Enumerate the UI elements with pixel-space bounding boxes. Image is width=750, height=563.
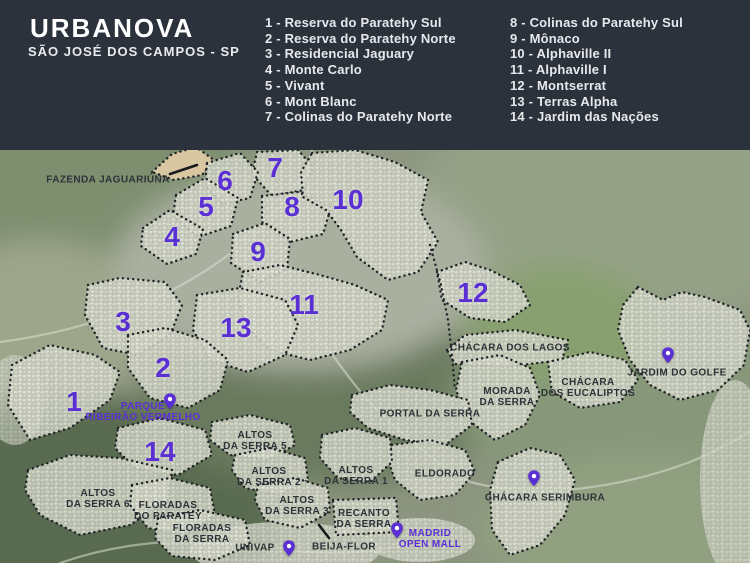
label-line: UNIVAP [235, 542, 274, 553]
area-number-14: 14 [144, 438, 175, 466]
jardim-do-golfe-pin-icon [659, 346, 677, 364]
legend-item: 1 - Reserva do Paratehy Sul [265, 15, 456, 31]
label-fazenda-jaguariuna: FAZENDA JAGUARIÚNA [46, 174, 170, 185]
legend-item: 4 - Monte Carlo [265, 62, 456, 78]
label-morada-da-serra: MORADADA SERRA [479, 386, 534, 408]
label-eldorado: ELDORADO [415, 468, 475, 479]
legend-item: 7 - Colinas do Paratehy Norte [265, 109, 456, 125]
label-line: FLORADAS [134, 500, 202, 511]
area-number-7: 7 [267, 154, 283, 182]
label-line: DA SERRA 1 [324, 476, 388, 487]
area-number-12: 12 [457, 279, 488, 307]
label-line: DA SERRA [336, 519, 391, 530]
area-number-11: 11 [289, 291, 319, 319]
legend-item: 8 - Colinas do Paratehy Sul [510, 15, 683, 31]
univap-pin-icon [280, 539, 298, 557]
label-line: ALTOS [237, 466, 301, 477]
label-line: RECANTO [336, 508, 391, 519]
label-altos-da-serra-5: ALTOSDA SERRA 5 [223, 430, 287, 452]
label-altos-da-serra-1: ALTOSDA SERRA 1 [324, 465, 388, 487]
parque-ribeirao-vermelho-pin-icon [161, 392, 179, 410]
area-number-3: 3 [115, 308, 131, 336]
legend-item: 12 - Montserrat [510, 78, 683, 94]
label-line: ALTOS [223, 430, 287, 441]
label-line: DA SERRA 6 [66, 499, 130, 510]
label-portal-da-serra: PORTAL DA SERRA [380, 408, 481, 419]
label-chacara-dos-eucaliptos: CHÁCARADOS EUCALIPTOS [541, 377, 635, 399]
label-floradas-do-paratey: FLORADASDO PARATEY [134, 500, 202, 522]
label-line: MADRID [399, 528, 462, 539]
label-line: FAZENDA JAGUARIÚNA [46, 174, 170, 185]
legend-item: 11 - Alphaville I [510, 62, 683, 78]
area-number-13: 13 [220, 314, 251, 342]
label-line: ALTOS [324, 465, 388, 476]
label-line: DA SERRA [173, 534, 232, 545]
label-line: FLORADAS [173, 523, 232, 534]
label-line: DA SERRA 2 [237, 477, 301, 488]
label-line: BEIJA-FLOR [312, 541, 376, 552]
label-line: CHÁCARA [541, 377, 635, 388]
label-line: OPEN MALL [399, 539, 462, 550]
madrid-open-mall-pin-icon [388, 521, 406, 539]
label-line: DOS EUCALIPTOS [541, 388, 635, 399]
area-number-1: 1 [66, 388, 82, 416]
label-line: PARQUE [85, 401, 200, 412]
label-altos-da-serra-6: ALTOSDA SERRA 6 [66, 488, 130, 510]
legend-column-1: 1 - Reserva do Paratehy Sul2 - Reserva d… [265, 15, 456, 125]
area-number-5: 5 [198, 193, 214, 221]
chacara-serimbura-pin-icon [525, 469, 543, 487]
satellite-map: 1234567891011121314FAZENDA JAGUARIÚNACHÁ… [0, 150, 750, 563]
label-madrid-open-mall: MADRIDOPEN MALL [399, 528, 462, 550]
legend-item: 10 - Alphaville II [510, 46, 683, 62]
area-number-9: 9 [250, 238, 266, 266]
label-line: ALTOS [66, 488, 130, 499]
area-number-8: 8 [284, 193, 300, 221]
area-number-10: 10 [332, 186, 363, 214]
label-line: ELDORADO [415, 468, 475, 479]
legend-item: 13 - Terras Alpha [510, 94, 683, 110]
legend-item: 6 - Mont Blanc [265, 94, 456, 110]
page-title: URBANOVA [30, 13, 194, 44]
label-recanto-da-serra: RECANTODA SERRA [336, 508, 391, 530]
header: URBANOVA SÃO JOSÉ DOS CAMPOS - SP 1 - Re… [0, 0, 750, 150]
legend-item: 3 - Residencial Jaguary [265, 46, 456, 62]
label-line: CHÁCARA SERIMBURA [485, 492, 605, 503]
legend-item: 2 - Reserva do Paratehy Norte [265, 31, 456, 47]
legend-item: 9 - Mônaco [510, 31, 683, 47]
area-number-6: 6 [217, 167, 233, 195]
label-line: DA SERRA 3 [265, 506, 329, 517]
label-line: DA SERRA [479, 397, 534, 408]
label-line: DO PARATEY [134, 511, 202, 522]
page-subtitle: SÃO JOSÉ DOS CAMPOS - SP [28, 44, 240, 59]
urbanova-map-infographic: URBANOVA SÃO JOSÉ DOS CAMPOS - SP 1 - Re… [0, 0, 750, 563]
area-number-4: 4 [164, 223, 180, 251]
label-chacara-serimbura: CHÁCARA SERIMBURA [485, 492, 605, 503]
label-line: CHÁCARA DOS LAGOS [450, 342, 570, 353]
label-altos-da-serra-2: ALTOSDA SERRA 2 [237, 466, 301, 488]
label-beija-flor: BEIJA-FLOR [312, 541, 376, 552]
legend-item: 5 - Vivant [265, 78, 456, 94]
label-line: MORADA [479, 386, 534, 397]
map-overlay: 1234567891011121314FAZENDA JAGUARIÚNACHÁ… [0, 150, 750, 563]
label-parque-ribeirao-vermelho: PARQUERIBEIRÃO VERMELHO [85, 401, 200, 423]
label-univap: UNIVAP [235, 542, 274, 553]
area-number-2: 2 [155, 354, 171, 382]
legend-item: 14 - Jardim das Nações [510, 109, 683, 125]
label-chacara-dos-lagos: CHÁCARA DOS LAGOS [450, 342, 570, 353]
label-line: JARDIM DO GOLFE [627, 367, 726, 378]
label-line: DA SERRA 5 [223, 441, 287, 452]
label-line: ALTOS [265, 495, 329, 506]
label-line: PORTAL DA SERRA [380, 408, 481, 419]
label-altos-da-serra-3: ALTOSDA SERRA 3 [265, 495, 329, 517]
label-jardim-do-golfe: JARDIM DO GOLFE [627, 367, 726, 378]
legend-column-2: 8 - Colinas do Paratehy Sul9 - Mônaco10 … [510, 15, 683, 125]
label-line: RIBEIRÃO VERMELHO [85, 412, 200, 423]
label-floradas-da-serra: FLORADASDA SERRA [173, 523, 232, 545]
